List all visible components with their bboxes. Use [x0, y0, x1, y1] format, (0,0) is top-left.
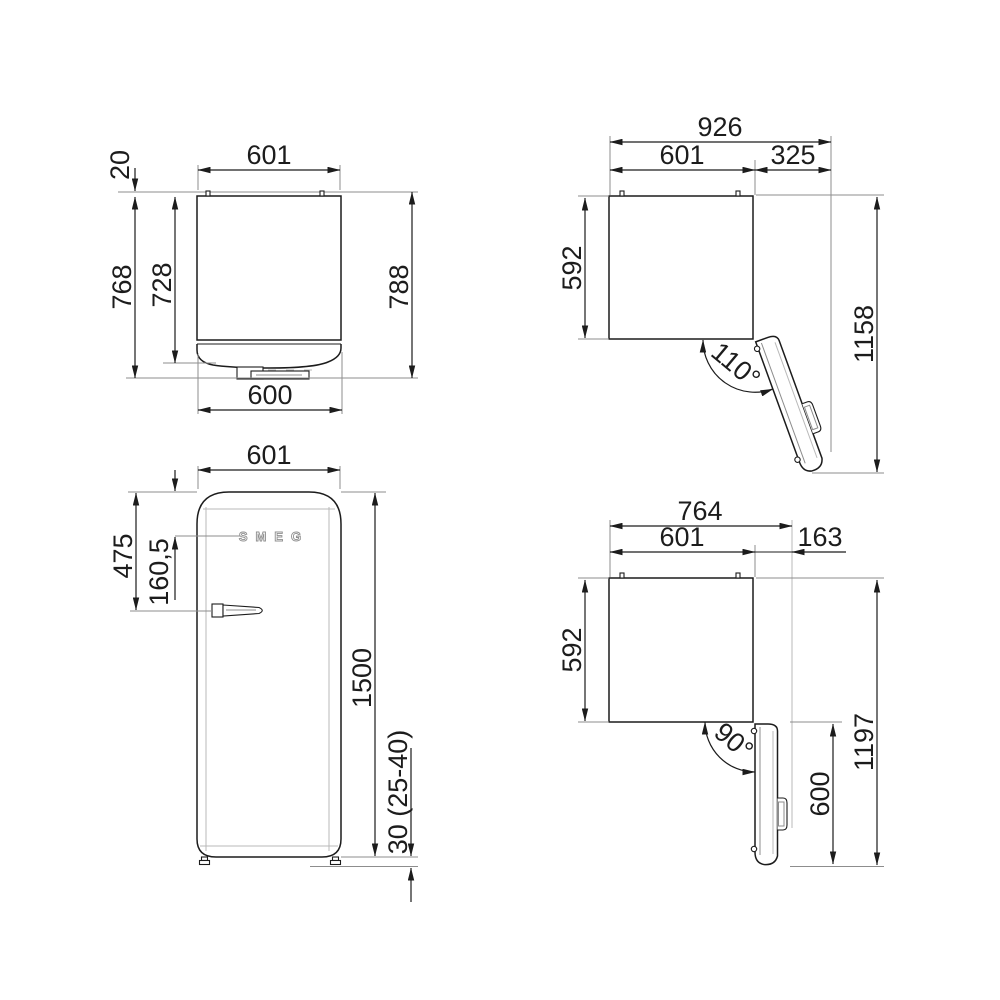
fridge-body-top-view [609, 578, 753, 722]
dim-label-width-body: 601 [659, 140, 704, 170]
hinge-mark [620, 191, 624, 196]
adjustable-foot [331, 857, 341, 865]
dim-label-width-door: 600 [247, 380, 292, 410]
fridge-front-outline [197, 492, 341, 857]
adjustable-foot [200, 857, 210, 865]
dim-label-depth-handle: 768 [107, 264, 137, 309]
dim-label-wall-gap: 20 [105, 150, 135, 180]
open-door-110 [752, 331, 834, 475]
dim-label-feet-height: 30 (25-40) [383, 730, 413, 855]
dim-label-depth-body: 728 [147, 262, 177, 307]
fridge-body-top-view [609, 196, 753, 339]
dim-label-logo-offset: 160,5 [144, 538, 174, 606]
smeg-fridge-dimension-drawing: 601 20 768 728 788 600 110° 926 601 325 [0, 0, 1000, 1000]
handle-mount-front [212, 604, 223, 617]
view-top-closed: 601 20 768 728 788 600 [105, 140, 418, 414]
dim-label-depth-total: 788 [384, 264, 414, 309]
dim-label-height: 1500 [347, 648, 377, 708]
view-top-open-90: 90° 764 601 163 592 1197 600 [557, 496, 884, 867]
dim-label-depth-body: 592 [557, 627, 587, 672]
dim-label-width-total: 926 [697, 112, 742, 142]
door-front-curve [197, 344, 341, 368]
dim-label-depth-door-open: 1197 [849, 713, 879, 771]
dim-label-door-depth: 600 [805, 771, 835, 816]
view-top-open-110: 110° 926 601 325 592 1158 [557, 112, 884, 475]
dim-label-door-projection: 163 [797, 522, 842, 552]
dim-label-handle-height: 475 [108, 533, 138, 578]
dim-label-width-body: 601 [659, 522, 704, 552]
dim-label-width: 601 [246, 440, 291, 470]
dim-label-door-projection: 325 [770, 140, 815, 170]
hinge-mark [736, 191, 740, 196]
dim-label-depth-door-open: 1158 [849, 305, 879, 363]
dim-label-opening-angle: 90° [708, 716, 759, 765]
brand-logo: SMEG [239, 529, 309, 544]
view-front: SMEG 601 475 160,5 1500 30 (25-40) [108, 440, 418, 902]
dim-label-width-top: 601 [246, 140, 291, 170]
hinge-mark [206, 191, 210, 196]
dim-label-depth-body: 592 [557, 245, 587, 290]
hinge-mark [736, 573, 740, 578]
hinge-mark [320, 191, 324, 196]
hinge-mark [620, 573, 624, 578]
fridge-body-top-view [197, 196, 341, 340]
